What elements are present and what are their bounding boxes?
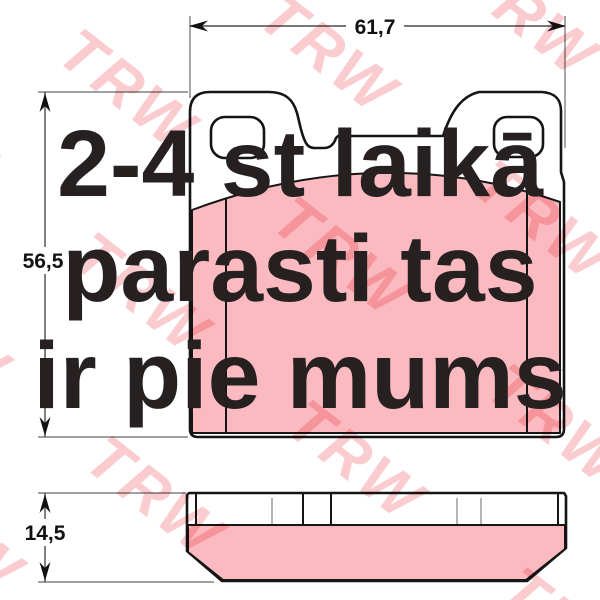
side-view — [187, 493, 566, 581]
brake-pad-technical-drawing: 61,7 56,5 14,5 — [0, 0, 600, 600]
dimension-width-label: 61,7 — [355, 16, 396, 39]
dimension-height-label: 56,5 — [23, 250, 64, 273]
lug-hole-right — [494, 117, 543, 157]
lug-hole-left — [211, 117, 264, 158]
dimension-thickness-label: 14,5 — [25, 522, 66, 545]
product-drawing-image: 61,7 56,5 14,5 TRWTRWTRWTRWTRWTRWTRWTRWT… — [0, 0, 600, 600]
friction-material-front — [192, 173, 560, 433]
friction-material-side — [188, 525, 565, 580]
front-view — [190, 92, 564, 437]
